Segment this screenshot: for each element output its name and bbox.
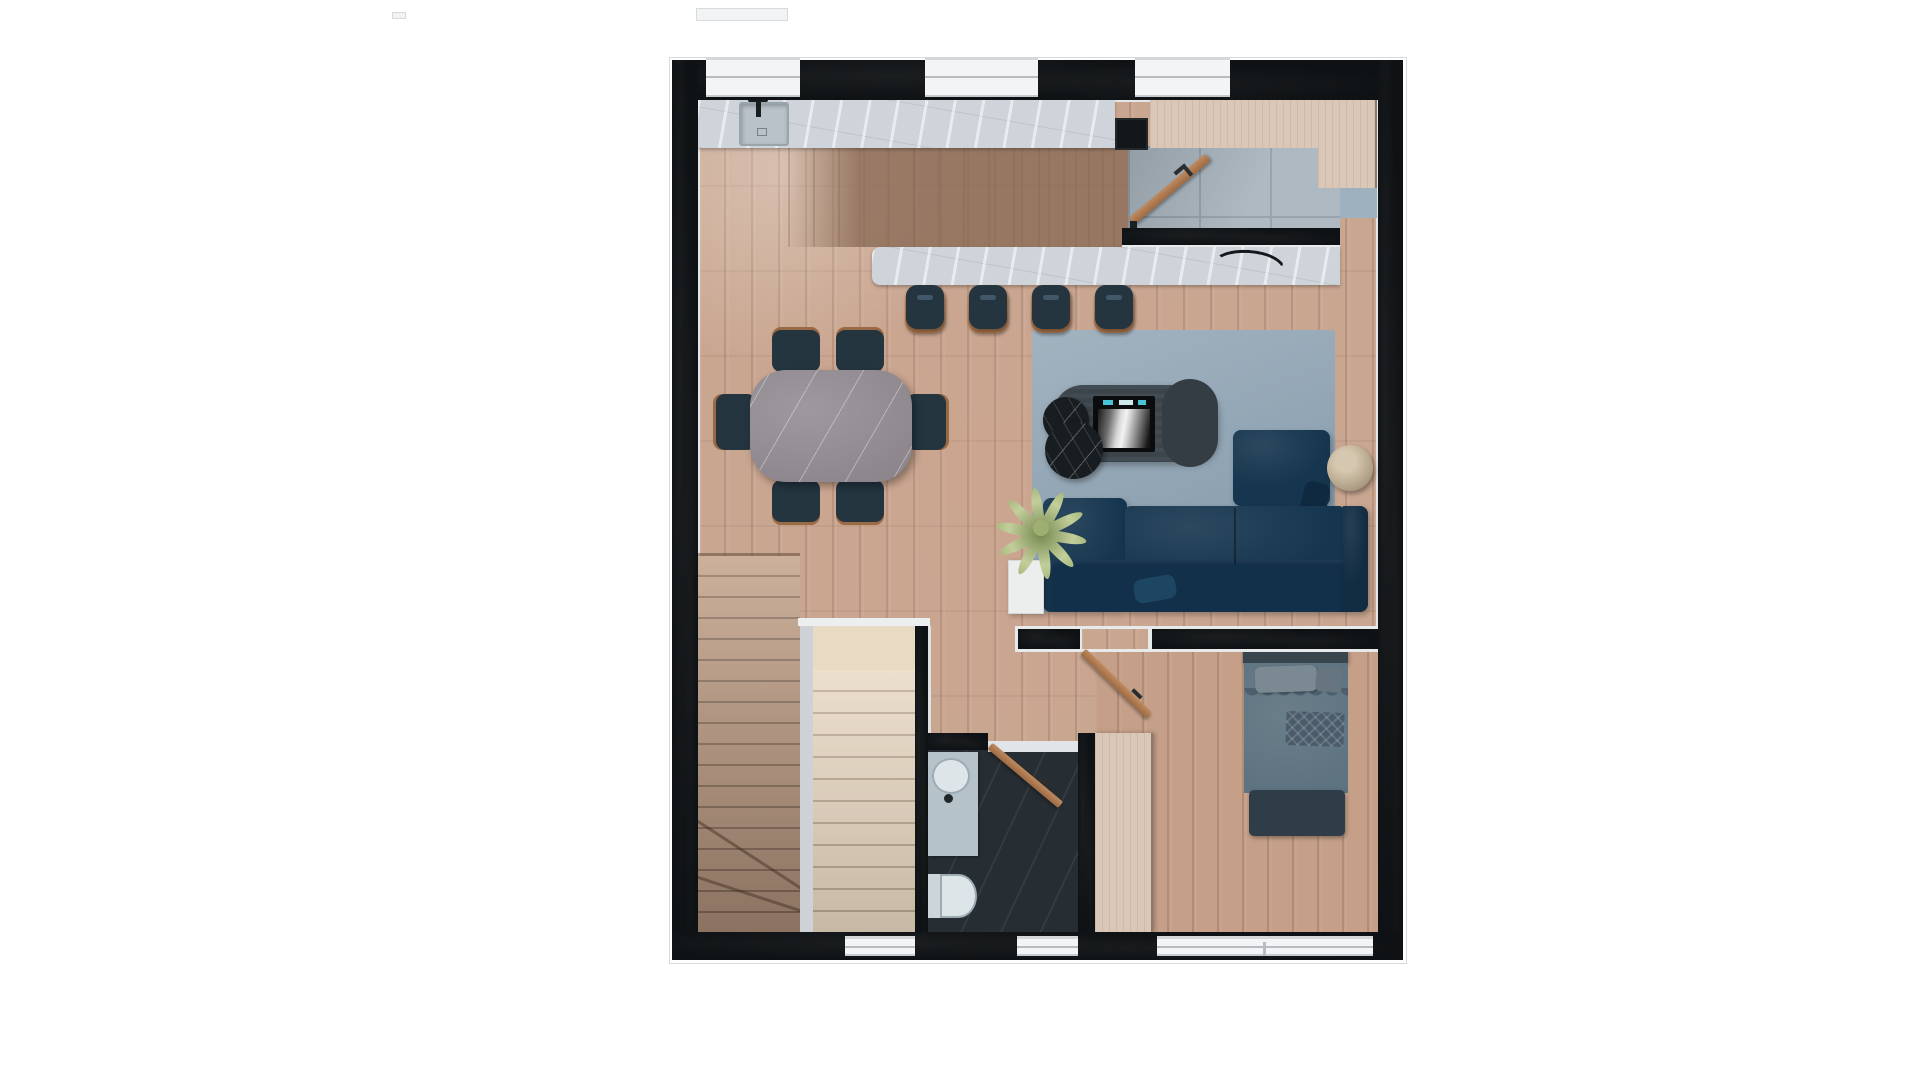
dining-chair xyxy=(772,330,820,372)
divider-door-gap xyxy=(1082,629,1148,649)
wall-left xyxy=(672,60,698,960)
sink-faucet xyxy=(944,794,953,803)
potted-plant xyxy=(995,487,1087,579)
tv-media-unit-end xyxy=(1162,379,1218,467)
dining-chair xyxy=(836,480,884,522)
bed-pillow xyxy=(1255,665,1318,693)
sink-drain xyxy=(757,128,767,136)
stair-top-cap xyxy=(798,618,930,626)
bed-throw-patterned xyxy=(1285,711,1344,747)
tv-caption-dash xyxy=(1119,400,1133,405)
floor-plan-canvas xyxy=(0,0,1920,1080)
window-bottom-bathroom xyxy=(1017,936,1078,956)
stool-slot xyxy=(917,295,933,300)
window-bottom-stairs xyxy=(845,936,915,956)
bathroom-right-wall xyxy=(1078,733,1095,932)
stair-wall-light xyxy=(800,626,813,932)
stair-flight-left xyxy=(698,556,800,932)
tv-caption-dash xyxy=(1138,400,1146,405)
dining-chair xyxy=(836,330,884,372)
living-bedroom-divider-left xyxy=(1018,629,1080,649)
coffee-table-large xyxy=(1045,421,1103,479)
sofa-back-cushions xyxy=(1050,560,1360,612)
entry-tile-floor xyxy=(1128,146,1340,228)
window-top-left xyxy=(706,57,800,97)
window-mullion xyxy=(1263,942,1266,956)
sofa-arm-right xyxy=(1343,506,1368,612)
bar-stool xyxy=(1032,285,1070,329)
stool-slot xyxy=(1043,295,1059,300)
bar-stool xyxy=(969,285,1007,329)
cooktop-appliance xyxy=(1115,118,1148,150)
dining-chair xyxy=(772,480,820,522)
kitchen-floor-strip xyxy=(788,148,1128,247)
living-bedroom-divider-right xyxy=(1152,629,1378,649)
bed-pillow-small xyxy=(1315,667,1343,694)
stair-flight-middle xyxy=(813,670,915,932)
stub-wall-trim xyxy=(1122,245,1340,247)
window-top-right xyxy=(1135,57,1230,97)
stool-slot xyxy=(1106,295,1122,300)
dining-chair xyxy=(906,394,946,450)
door-handle xyxy=(1184,166,1193,176)
kitchen-faucet-stem xyxy=(756,101,761,117)
bathroom-sink xyxy=(932,758,970,794)
dining-table xyxy=(750,370,912,482)
bar-stool xyxy=(906,285,944,329)
tv-caption-dash xyxy=(1103,400,1113,405)
front-door-hinge xyxy=(1130,221,1137,228)
bed-foot-bench xyxy=(1249,790,1345,836)
tv-screen-image xyxy=(1098,409,1150,448)
plant-center xyxy=(1033,520,1049,536)
window-bottom-bedroom xyxy=(1157,936,1373,956)
window-pane-artifact xyxy=(392,12,406,19)
entry-door-mat xyxy=(1340,188,1377,218)
bathroom-top-wall xyxy=(928,733,988,750)
entry-wardrobe-side xyxy=(1318,148,1377,188)
ball-pouf xyxy=(1327,445,1373,491)
stool-slot xyxy=(980,295,996,300)
stair-wall-dark xyxy=(915,626,928,932)
sofa-cushion-gap xyxy=(1234,508,1236,564)
open-window-pane xyxy=(696,8,788,21)
stair-landing xyxy=(813,626,915,670)
wall-right xyxy=(1378,60,1403,960)
entry-stub-wall xyxy=(1122,228,1340,245)
toilet-bowl xyxy=(940,874,977,918)
kitchen-sink xyxy=(739,102,789,146)
bar-stool xyxy=(1095,285,1133,329)
window-top-middle xyxy=(925,57,1038,97)
bedroom-closet-slab xyxy=(1095,733,1153,932)
